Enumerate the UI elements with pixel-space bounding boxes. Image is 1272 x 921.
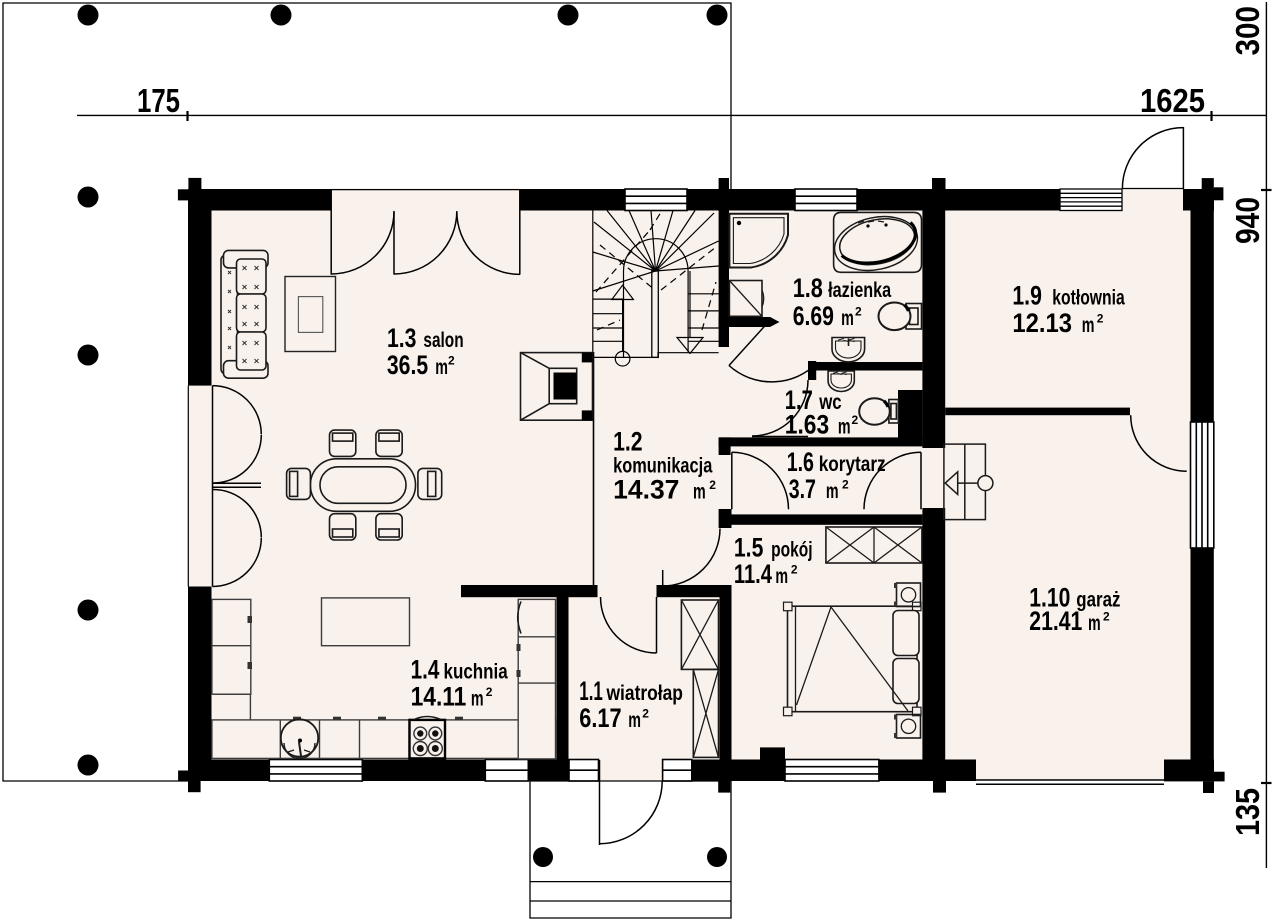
svg-text:1.3: 1.3 xyxy=(387,324,416,354)
svg-text:2: 2 xyxy=(642,707,649,721)
svg-text:m: m xyxy=(838,415,851,438)
svg-text:pokój: pokój xyxy=(771,537,812,561)
svg-text:1.5: 1.5 xyxy=(734,533,763,563)
svg-text:2: 2 xyxy=(1103,609,1110,623)
svg-text:175: 175 xyxy=(137,83,180,120)
svg-text:komunikacja: komunikacja xyxy=(613,453,713,476)
svg-text:135: 135 xyxy=(1229,788,1266,836)
svg-text:6.69: 6.69 xyxy=(793,302,834,332)
svg-text:36.5: 36.5 xyxy=(387,351,428,381)
svg-text:kotłownia: kotłownia xyxy=(1052,285,1125,309)
svg-text:11.4: 11.4 xyxy=(734,560,772,589)
svg-text:2: 2 xyxy=(486,685,493,699)
svg-text:wiatrołap: wiatrołap xyxy=(606,682,683,705)
svg-text:m: m xyxy=(1082,313,1095,336)
svg-text:1.6: 1.6 xyxy=(787,447,814,477)
svg-text:300: 300 xyxy=(1230,6,1267,56)
svg-text:m: m xyxy=(775,564,788,587)
svg-text:6.17: 6.17 xyxy=(579,704,621,734)
svg-text:m: m xyxy=(1088,611,1101,634)
svg-text:m: m xyxy=(628,708,641,731)
svg-text:garaż: garaż xyxy=(1076,589,1120,612)
svg-text:940: 940 xyxy=(1229,197,1267,244)
svg-text:12.13: 12.13 xyxy=(1012,309,1072,338)
svg-text:1.4: 1.4 xyxy=(411,655,440,685)
svg-text:2: 2 xyxy=(842,477,849,491)
svg-text:2: 2 xyxy=(1097,312,1104,326)
svg-text:2: 2 xyxy=(448,354,455,368)
svg-text:3.7: 3.7 xyxy=(789,474,816,504)
svg-text:m: m xyxy=(826,479,839,502)
svg-text:14.37: 14.37 xyxy=(613,475,679,505)
svg-text:łazienka: łazienka xyxy=(828,278,891,302)
svg-text:m: m xyxy=(841,306,854,329)
svg-text:2: 2 xyxy=(852,413,859,427)
svg-text:1.63: 1.63 xyxy=(785,411,829,440)
svg-text:m: m xyxy=(435,355,448,378)
svg-text:1.1: 1.1 xyxy=(579,676,603,706)
svg-text:1625: 1625 xyxy=(1140,82,1205,119)
svg-text:salon: salon xyxy=(423,328,463,352)
svg-text:1.9: 1.9 xyxy=(1012,282,1041,312)
svg-text:2: 2 xyxy=(709,478,716,492)
svg-text:1.8: 1.8 xyxy=(793,274,823,304)
svg-text:14.11: 14.11 xyxy=(411,683,467,712)
svg-text:korytarz: korytarz xyxy=(819,454,886,477)
svg-text:21.41: 21.41 xyxy=(1029,607,1082,637)
svg-text:m: m xyxy=(693,480,706,503)
svg-text:2: 2 xyxy=(855,305,862,319)
svg-text:m: m xyxy=(471,687,484,710)
svg-text:kuchnia: kuchnia xyxy=(444,661,509,684)
svg-text:2: 2 xyxy=(791,563,798,577)
